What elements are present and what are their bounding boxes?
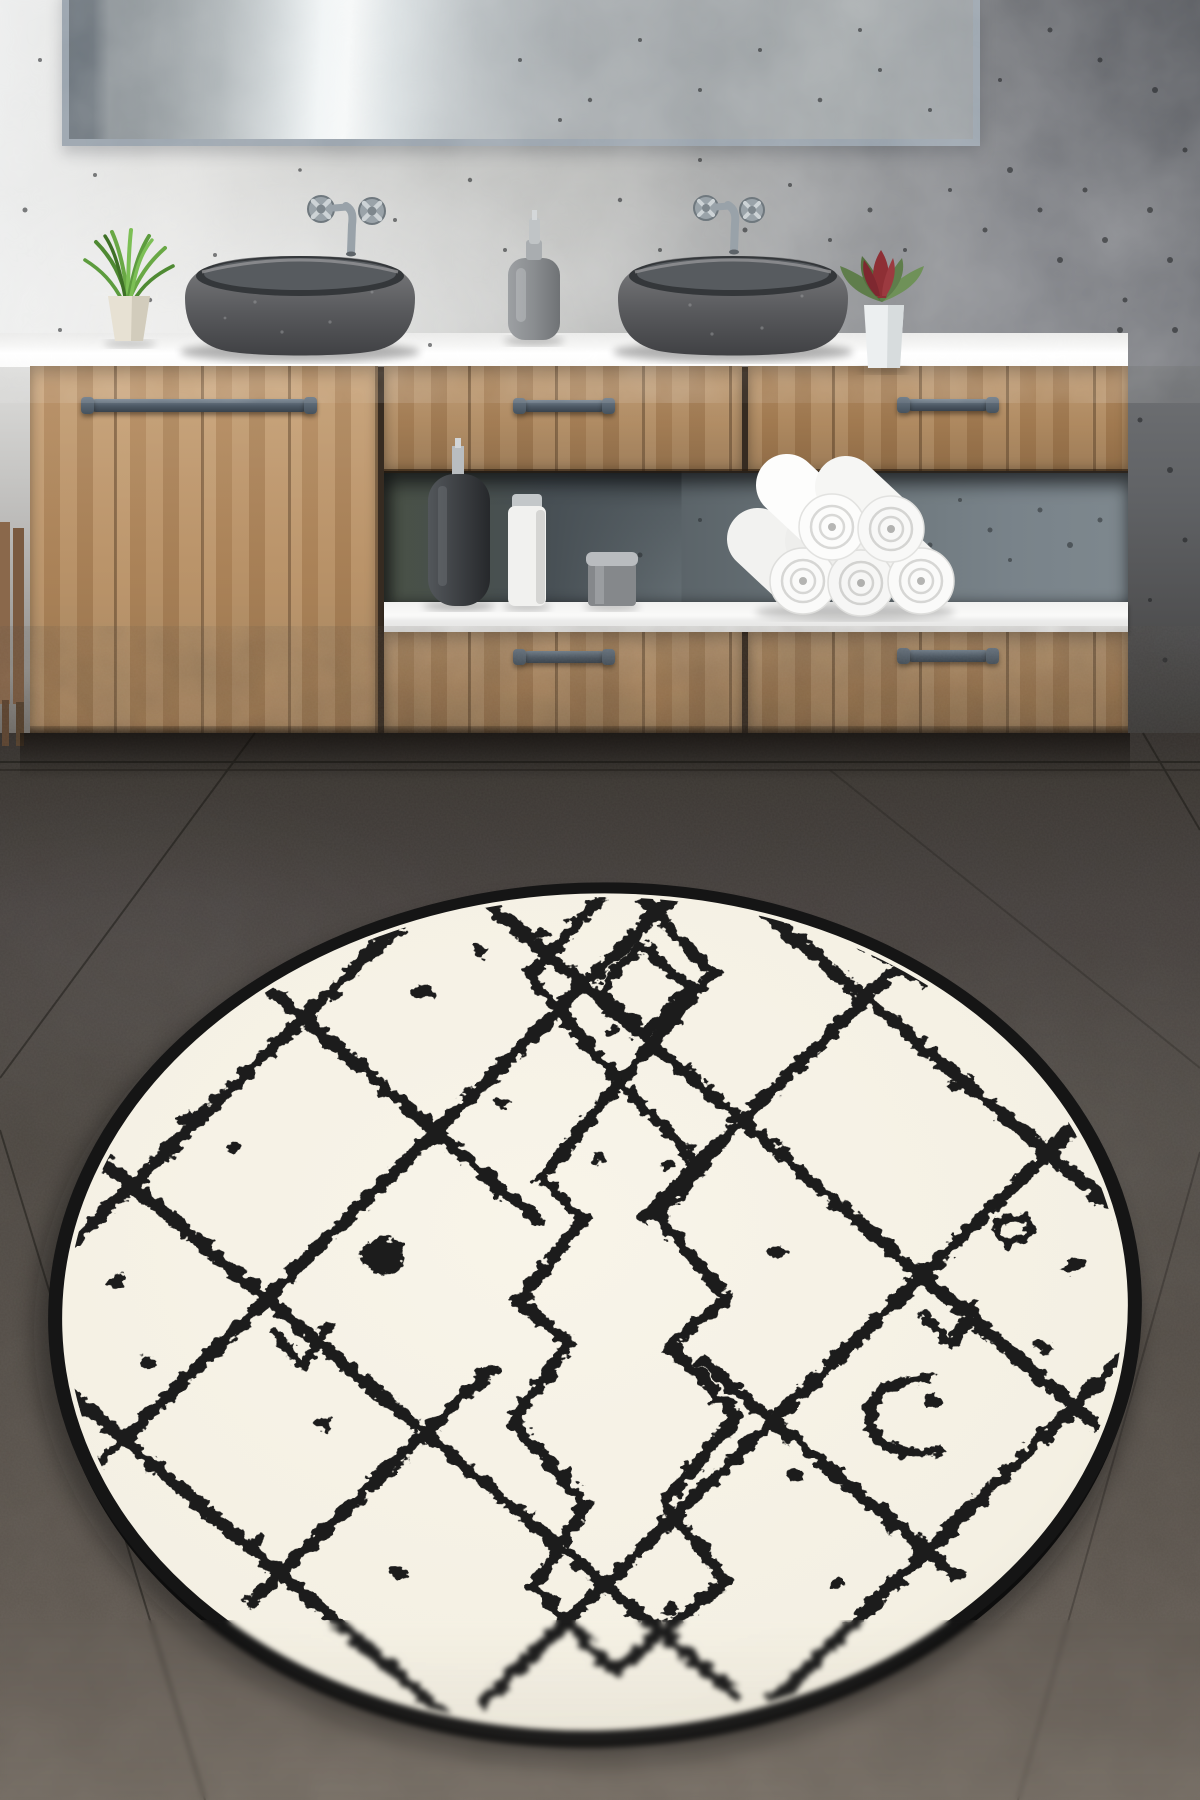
cabinet-seam (378, 366, 384, 733)
cabinet-seam (742, 366, 748, 471)
drawer-handle-right-upper (906, 399, 990, 411)
drawer-right-lower (748, 632, 1128, 733)
wall-mirror (62, 0, 980, 146)
countertop (0, 333, 1128, 367)
drawer-middle-upper (384, 366, 742, 471)
wall-left-of-vanity (0, 366, 30, 748)
drawer-right-upper (748, 366, 1128, 471)
drawer-handle-right-lower (906, 650, 990, 662)
drawer-handle-middle-upper (522, 400, 606, 412)
open-shelf-niche (384, 471, 1128, 602)
bathroom-scene (0, 0, 1200, 1800)
cabinet-door-left (30, 366, 378, 733)
towel-bar-handle (90, 399, 308, 412)
drawer-handle-middle-lower (522, 651, 606, 663)
foreground-blur (0, 1620, 1200, 1800)
shelf-slab (384, 602, 1128, 632)
cabinet-seam (742, 632, 748, 733)
wall-right-of-vanity (1128, 366, 1200, 748)
drawer-middle-lower (384, 632, 742, 733)
cabinet-seam (384, 469, 1128, 473)
